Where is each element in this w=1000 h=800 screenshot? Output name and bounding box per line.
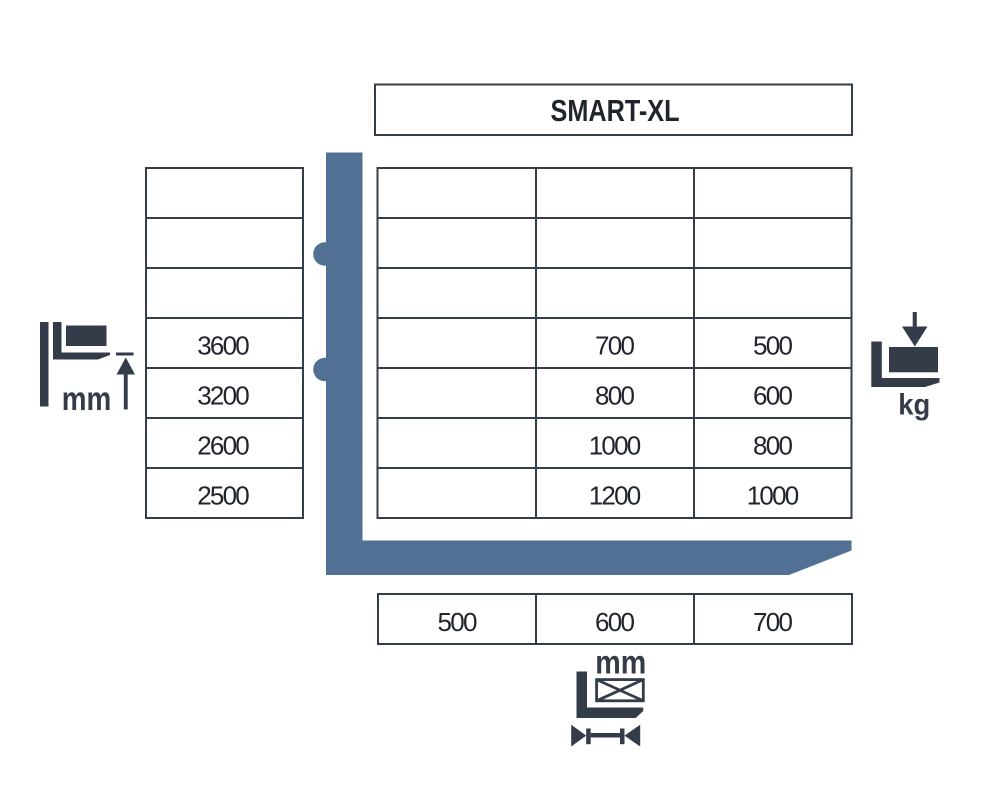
- svg-text:3200: 3200: [197, 380, 250, 410]
- svg-text:3600: 3600: [197, 330, 250, 360]
- svg-text:600: 600: [595, 607, 635, 637]
- svg-text:800: 800: [753, 430, 793, 460]
- svg-text:1000: 1000: [589, 430, 642, 460]
- svg-text:800: 800: [595, 380, 635, 410]
- svg-text:2600: 2600: [197, 430, 250, 460]
- svg-text:mm: mm: [595, 644, 646, 681]
- svg-text:kg: kg: [898, 389, 930, 422]
- svg-text:600: 600: [753, 380, 793, 410]
- svg-text:700: 700: [595, 330, 635, 360]
- svg-text:2500: 2500: [197, 480, 250, 510]
- svg-text:500: 500: [438, 607, 478, 637]
- svg-text:1000: 1000: [747, 480, 800, 510]
- svg-text:SMART-XL: SMART-XL: [551, 93, 680, 128]
- svg-text:700: 700: [753, 607, 793, 637]
- svg-text:500: 500: [753, 330, 793, 360]
- svg-text:mm: mm: [62, 380, 112, 417]
- svg-text:1200: 1200: [589, 480, 642, 510]
